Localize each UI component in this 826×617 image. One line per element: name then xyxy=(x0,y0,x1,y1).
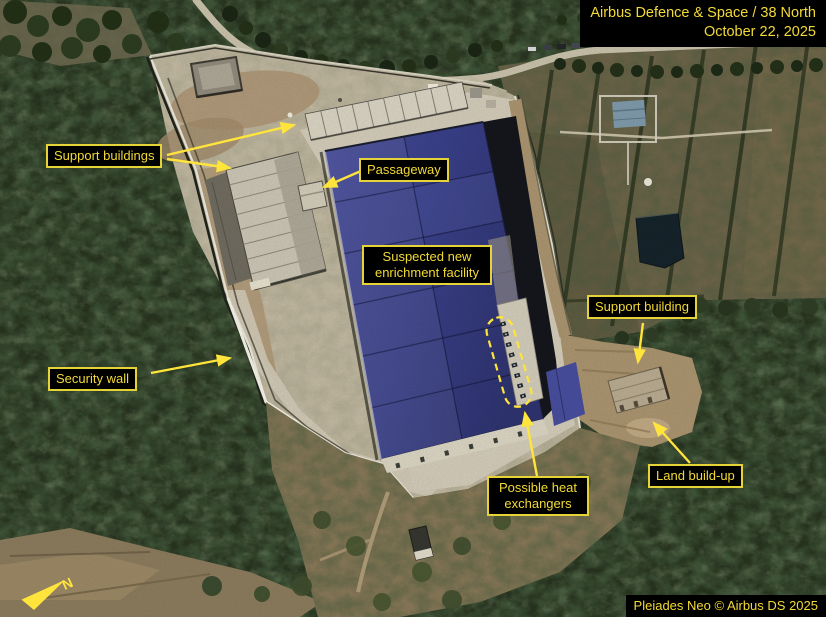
north-arrow-label: N xyxy=(59,574,75,593)
annotation-overlay: N xyxy=(0,0,826,617)
image-copyright: Pleiades Neo © Airbus DS 2025 xyxy=(626,595,826,617)
label-support-building: Support building xyxy=(587,295,697,319)
image-credit: Airbus Defence & Space / 38 North Octobe… xyxy=(580,0,826,47)
arrow-passageway xyxy=(324,171,361,187)
arrow-support-buildings-north xyxy=(167,125,294,155)
arrow-security-wall xyxy=(151,358,230,373)
arrow-land-buildup xyxy=(654,423,690,463)
label-support-buildings: Support buildings xyxy=(46,144,162,168)
arrow-heat-exchangers xyxy=(525,413,537,476)
north-arrow-icon: N xyxy=(22,574,75,610)
credit-date: October 22, 2025 xyxy=(590,23,816,42)
label-security-wall: Security wall xyxy=(48,367,137,391)
label-enrichment-facility: Suspected new enrichment facility xyxy=(362,245,492,285)
label-heat-exchangers: Possible heat exchangers xyxy=(487,476,589,516)
label-passageway: Passageway xyxy=(359,158,449,182)
arrow-support-building-east xyxy=(638,323,643,362)
credit-source: Airbus Defence & Space / 38 North xyxy=(590,4,816,23)
heat-exchangers-dashed-outline xyxy=(483,314,534,410)
annotated-satellite-image: N Support buildings Passageway Suspected… xyxy=(0,0,826,617)
arrow-support-buildings-west xyxy=(167,159,230,168)
label-land-buildup: Land build-up xyxy=(648,464,743,488)
